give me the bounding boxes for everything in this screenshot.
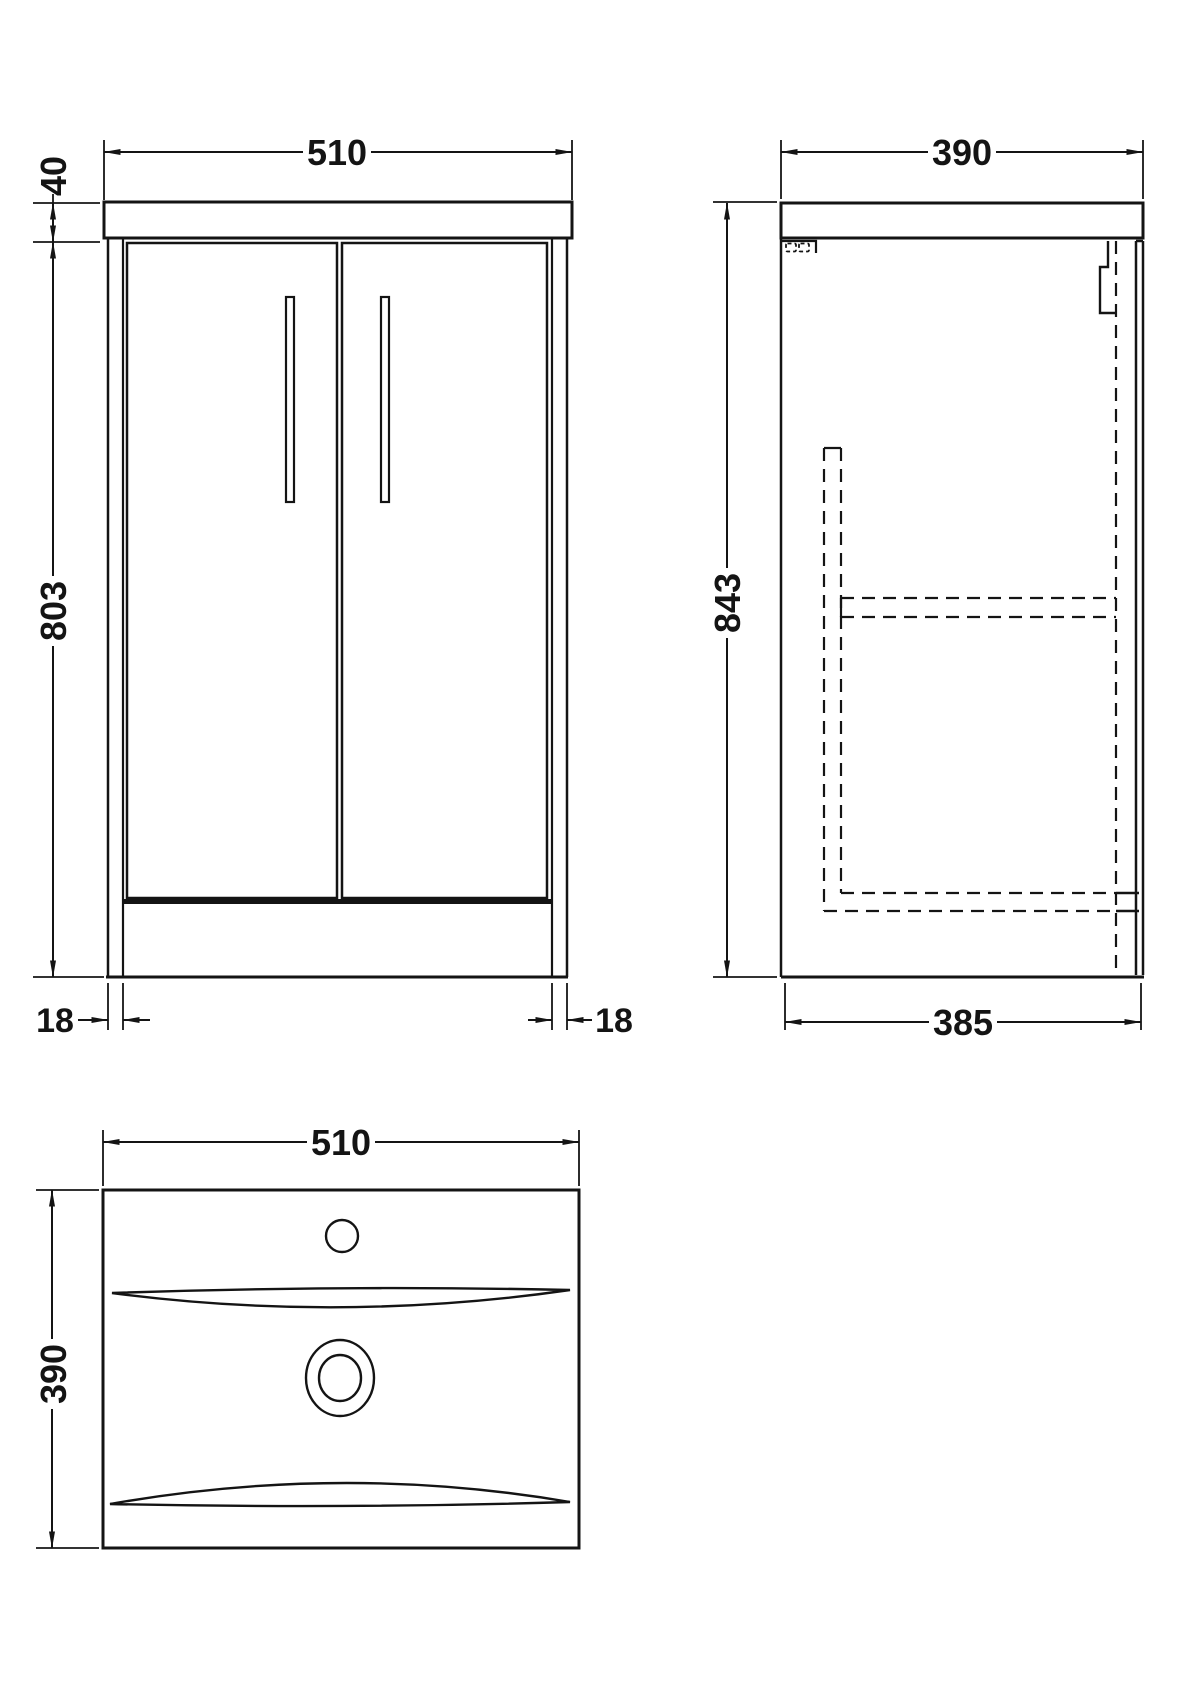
front-left-door bbox=[127, 243, 337, 898]
left-leg-dimension-label: 18 bbox=[36, 1002, 74, 1040]
right-leg-dimension-label: 18 bbox=[595, 1002, 633, 1040]
right-door-handle bbox=[381, 297, 389, 502]
side-elevation-view: 390 843 385 bbox=[707, 132, 1144, 1043]
front-worktop bbox=[104, 202, 572, 238]
left-door-handle bbox=[286, 297, 294, 502]
drawing-sheet: 510 40 803 18 18 bbox=[0, 0, 1200, 1698]
overall-height-dimension-label: 843 bbox=[707, 573, 748, 633]
basin-width-dimension-label: 510 bbox=[311, 1122, 371, 1163]
side-worktop bbox=[781, 203, 1143, 238]
front-right-door bbox=[342, 243, 547, 898]
basin-plan-view: 510 390 bbox=[33, 1122, 579, 1548]
hinge-arm-detail bbox=[1100, 241, 1117, 313]
cabinet-height-dimension-label: 803 bbox=[33, 581, 74, 641]
front-width-dimension-label: 510 bbox=[307, 132, 367, 173]
worktop-height-dimension-label: 40 bbox=[33, 156, 74, 196]
front-elevation-view: 510 40 803 18 18 bbox=[33, 132, 633, 1040]
side-depth-dimension-label: 390 bbox=[932, 132, 992, 173]
basin-depth-dimension-label: 390 bbox=[33, 1344, 74, 1404]
technical-drawing: 510 40 803 18 18 bbox=[0, 0, 1200, 1698]
hinge-plate-slot-icon bbox=[799, 244, 809, 252]
cabinet-depth-dimension-label: 385 bbox=[933, 1002, 993, 1043]
hinge-plate-slot-icon bbox=[786, 244, 796, 252]
